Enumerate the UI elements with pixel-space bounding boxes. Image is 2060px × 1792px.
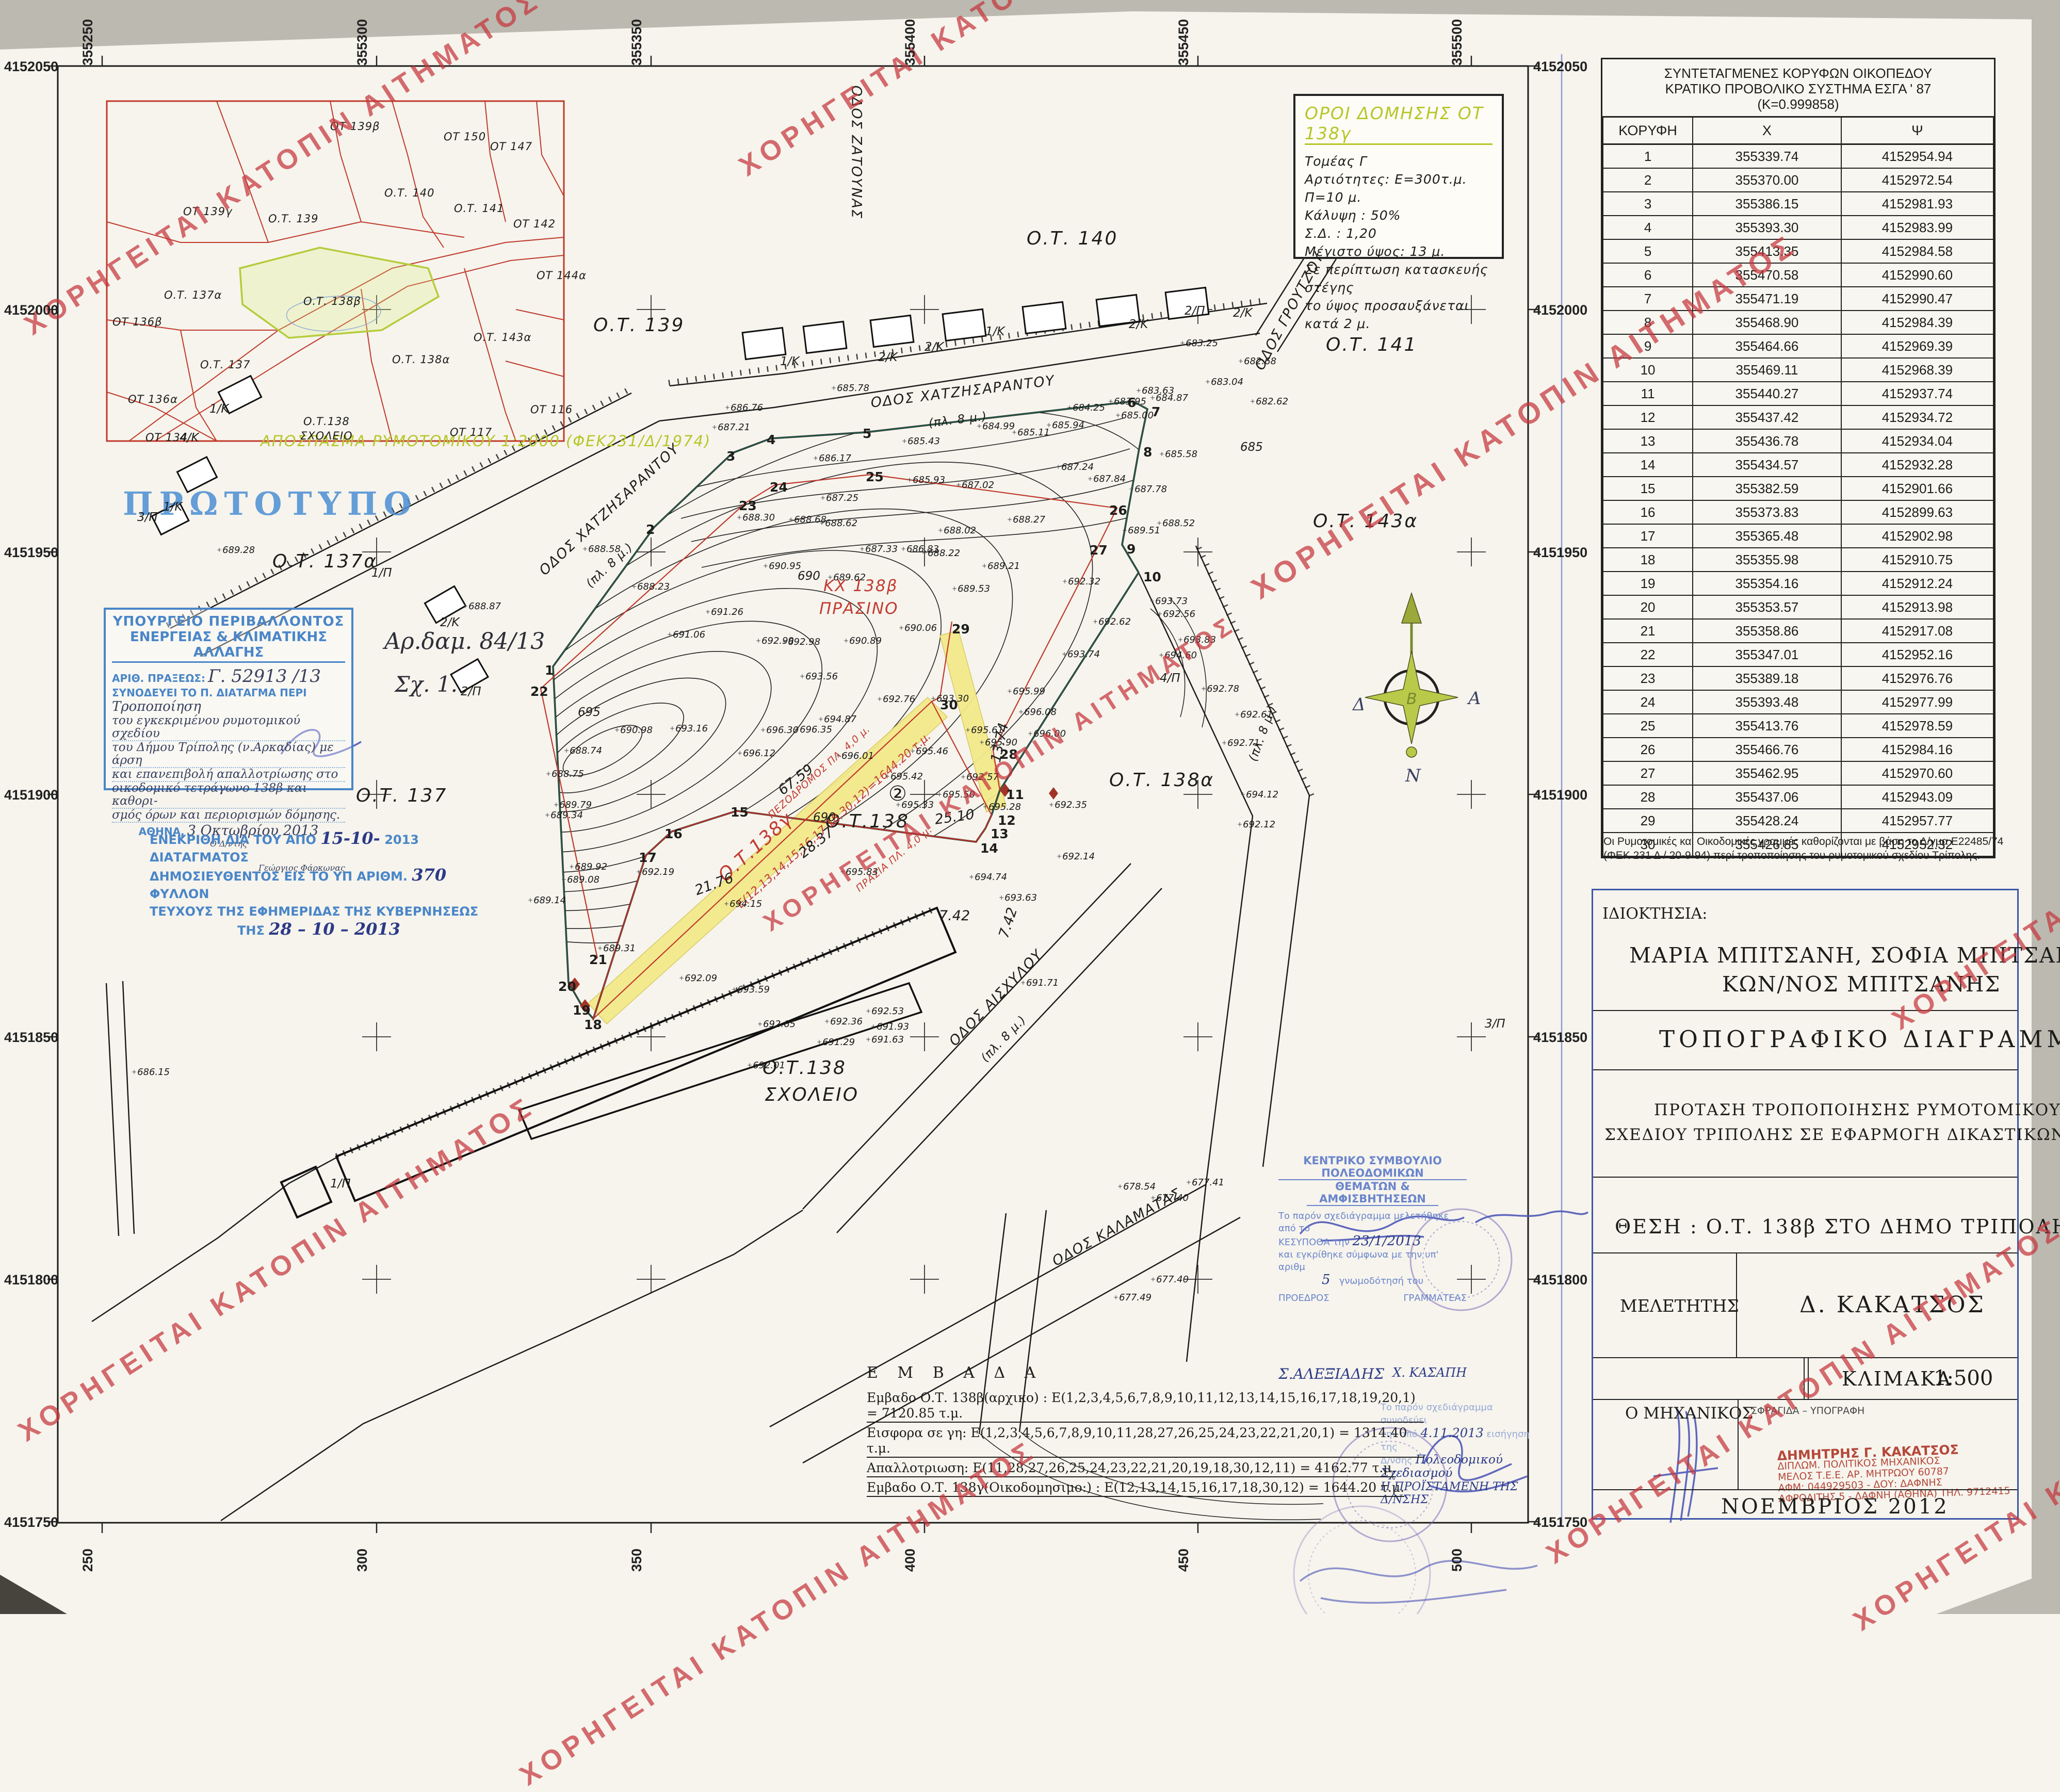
vertex-number: 13 bbox=[991, 826, 1009, 841]
grid-label-bottom: 500 bbox=[1449, 1549, 1465, 1572]
vertex-number: 30 bbox=[940, 697, 958, 712]
inset-block-label: Ο.Τ. 140 bbox=[384, 187, 434, 199]
spot-elevation: 692.12 bbox=[1237, 819, 1275, 830]
spot-elevation: 691.29 bbox=[817, 1037, 855, 1048]
spot-elevation: 690.06 bbox=[899, 623, 937, 633]
spot-elevation: 686.76 bbox=[725, 402, 763, 413]
grid-label-right: 4152050 bbox=[1533, 59, 1587, 75]
inset-block-label: ΟΤ 142 bbox=[513, 218, 556, 230]
spot-elevation: 688.22 bbox=[922, 548, 960, 559]
spot-elevation: 688.58 bbox=[582, 544, 621, 555]
spot-elevation: 683.25 bbox=[1180, 338, 1218, 349]
spot-elevation: 693.63 bbox=[999, 892, 1037, 903]
request-only-watermark: ΧΟΡΗΓΕΙΤΑΙ ΚΑΤΟΠΙΝ ΑΙΤΗΜΑΤΟΣ bbox=[1245, 227, 1804, 606]
inset-block-label: Ο.Τ. 137α bbox=[164, 289, 222, 301]
spot-elevation: 678.54 bbox=[1117, 1181, 1156, 1192]
spot-elevation: 692.61 bbox=[1235, 709, 1273, 720]
spot-elevation: 684.99 bbox=[977, 421, 1015, 432]
request-only-watermark: ΧΟΡΗΓΕΙΤΑΙ ΚΑΤΟΠΙΝ ΑΙΤΗΜΑΤΟΣ bbox=[514, 1433, 1042, 1792]
spot-elevation: 685.00 bbox=[1115, 410, 1154, 421]
spot-elevation: 682.62 bbox=[1250, 396, 1288, 407]
spot-elevation: 689.21 bbox=[982, 561, 1020, 572]
spot-elevation: 689.92 bbox=[569, 861, 607, 872]
spot-elevation: 696.08 bbox=[1018, 707, 1057, 718]
grid-label-left: 4151750 bbox=[4, 1514, 52, 1530]
street-label: ΟΔΟΣ ΑΙΣΧΥΛΟΥ bbox=[946, 947, 1046, 1049]
grid-label-bottom: 350 bbox=[629, 1549, 645, 1572]
map-label: Ο.Τ. 139 bbox=[593, 315, 685, 336]
map-label: Ο.Τ. 137α bbox=[272, 551, 378, 572]
spot-elevation: 694.87 bbox=[818, 714, 856, 725]
spot-elevation: 695.61 bbox=[965, 725, 1003, 736]
spot-elevation: 685.11 bbox=[1012, 427, 1050, 438]
map-label: 2/Π bbox=[461, 685, 481, 698]
vertex-number: 2 bbox=[646, 522, 655, 537]
spot-elevation: 692.35 bbox=[1049, 800, 1087, 810]
map-label: 1/Κ bbox=[985, 325, 1004, 338]
spot-elevation: 689.08 bbox=[561, 874, 599, 885]
map-label: Ο.Τ. 137 bbox=[356, 785, 447, 806]
spot-elevation: 683.04 bbox=[1205, 377, 1243, 387]
spot-elevation: 696.12 bbox=[737, 748, 775, 759]
spot-elevation: 694.15 bbox=[724, 899, 762, 909]
grid-label-right: 4151900 bbox=[1533, 787, 1587, 803]
spot-elevation: 691.06 bbox=[667, 629, 705, 640]
spot-elevation: 694.74 bbox=[969, 872, 1007, 883]
spot-elevation: 691.63 bbox=[866, 1034, 904, 1045]
map-label: 1/Π bbox=[371, 566, 392, 580]
map-label: 2/Π bbox=[1185, 304, 1205, 318]
map-label: 1/Κ bbox=[163, 500, 182, 514]
map-label: 3/Π bbox=[1485, 1017, 1505, 1031]
grid-label-right: 4152000 bbox=[1533, 302, 1587, 318]
vertex-number: 27 bbox=[1090, 543, 1108, 558]
vertex-number: 21 bbox=[589, 952, 607, 967]
spot-elevation: 692.62 bbox=[1093, 616, 1131, 627]
map-label: 1/Κ bbox=[780, 355, 799, 368]
vertex-number: 15 bbox=[731, 805, 749, 820]
scanned-topographic-sheet: { "watermark": {"text": "ΧΟΡΗΓΕΙΤΑΙ ΚΑΤΟ… bbox=[0, 0, 2060, 1614]
spot-elevation: 687.78 bbox=[1129, 484, 1167, 495]
compass-center-letter: Β bbox=[1406, 690, 1417, 708]
spot-elevation: 692.98 bbox=[782, 637, 820, 647]
spot-elevation: 689.28 bbox=[217, 545, 255, 556]
map-label: 1/Κ bbox=[209, 402, 229, 416]
spot-elevation: 693.59 bbox=[732, 984, 770, 995]
vertex-number: 29 bbox=[952, 622, 970, 637]
spot-elevation: 690.95 bbox=[763, 561, 801, 572]
map-label: 7.42 bbox=[939, 908, 970, 924]
vertex-number: 17 bbox=[639, 850, 657, 865]
spot-elevation: 696.35 bbox=[794, 724, 832, 735]
spot-elevation: 692.65 bbox=[757, 1019, 796, 1030]
inset-block-label: Ο.Τ. 137 bbox=[200, 359, 250, 371]
grid-label-top: 355350 bbox=[629, 19, 645, 66]
vertex-number: 16 bbox=[664, 826, 683, 841]
vertex-number: 1 bbox=[545, 663, 554, 678]
spot-elevation: 692.53 bbox=[866, 1006, 904, 1017]
spot-elevation: 688.87 bbox=[463, 601, 501, 612]
inset-block-label: ΟΤ 147 bbox=[490, 140, 532, 153]
map-label: Ο.Τ. 140 bbox=[1027, 228, 1118, 249]
spot-elevation: 688.23 bbox=[631, 581, 670, 592]
vertex-number: 22 bbox=[530, 684, 548, 699]
vertex-number: 25 bbox=[866, 469, 884, 484]
map-label: 2/Κ bbox=[924, 340, 944, 354]
spot-elevation: 696.01 bbox=[836, 751, 874, 761]
map-label: ΣΧΟΛΕΙΟ bbox=[765, 1084, 859, 1105]
spot-elevation: 691.26 bbox=[705, 607, 743, 617]
vertex-number: 6 bbox=[1127, 395, 1136, 410]
vertex-number: 26 bbox=[1109, 503, 1127, 518]
spot-elevation: 692.56 bbox=[1157, 609, 1195, 620]
grid-label-left: 4151800 bbox=[4, 1272, 52, 1288]
spot-elevation: 693.74 bbox=[1062, 649, 1100, 660]
spot-elevation: 690.98 bbox=[614, 725, 653, 736]
spot-elevation: 685.93 bbox=[907, 475, 945, 485]
grid-label-left: 4152000 bbox=[4, 302, 52, 318]
spot-elevation: 692.01 bbox=[747, 1060, 785, 1071]
map-label: 2/Κ bbox=[1233, 306, 1252, 320]
request-only-watermark: ΧΟΡΗΓΕΙΤΑΙ ΚΑΤΟΠΙΝ ΑΙΤΗΜΑΤΟΣ bbox=[1886, 678, 2060, 1036]
grid-label-bottom: 250 bbox=[80, 1549, 96, 1572]
spot-elevation: 689.14 bbox=[528, 895, 566, 906]
spot-elevation: 688.02 bbox=[938, 525, 976, 536]
request-only-watermark: ΧΟΡΗΓΕΙΤΑΙ ΚΑΤΟΠΙΝ ΑΙΤΗΜΑΤΟΣ bbox=[19, 0, 546, 341]
request-only-watermark: ΧΟΡΗΓΕΙΤΑΙ ΚΑΤΟΠΙΝ ΑΙΤΗΜΑΤΟΣ bbox=[12, 1089, 540, 1448]
spot-elevation: 682.68 bbox=[1238, 356, 1276, 367]
grid-label-top: 355300 bbox=[354, 19, 370, 66]
spot-elevation: 691.71 bbox=[1020, 978, 1059, 988]
compass-south-letter: Ν bbox=[1405, 765, 1421, 786]
map-label: 695 bbox=[578, 706, 601, 719]
spot-elevation: 686.17 bbox=[813, 453, 851, 464]
vertex-number: 19 bbox=[573, 1003, 591, 1018]
map-label: 2/Κ bbox=[440, 616, 459, 629]
inset-block-label: ΟΤ 136α bbox=[128, 393, 178, 405]
spot-elevation: 685.43 bbox=[902, 436, 940, 447]
vertex-number: 14 bbox=[980, 841, 998, 856]
spot-elevation: 688.62 bbox=[819, 518, 857, 529]
spot-elevation: 695.46 bbox=[910, 746, 948, 757]
map-label: Ο.Τ. 138α bbox=[1109, 770, 1214, 791]
inset-block-label: Ο.Τ.138 bbox=[303, 415, 350, 428]
spot-elevation: 677.49 bbox=[1113, 1292, 1151, 1303]
vertex-number: 24 bbox=[770, 480, 788, 495]
vertex-number: 5 bbox=[863, 426, 871, 441]
spot-elevation: 694.12 bbox=[1240, 789, 1278, 800]
inset-block-label: Ο.Τ. 138α bbox=[392, 353, 450, 366]
spot-elevation: 695.42 bbox=[885, 771, 923, 782]
spot-elevation: 695.28 bbox=[983, 802, 1021, 812]
street-label: ΟΔΟΣ ΓΡΟΥΤΖΟΥ bbox=[1252, 250, 1327, 373]
map-label: 7.42 bbox=[996, 906, 1020, 940]
inset-block-label: ΟΤ 136β bbox=[112, 316, 163, 328]
grid-label-bottom: 450 bbox=[1176, 1549, 1192, 1572]
spot-elevation: 692.36 bbox=[824, 1016, 863, 1027]
inset-block-label: Ο.Τ. 139 bbox=[268, 213, 318, 225]
spot-elevation: 686.15 bbox=[132, 1067, 170, 1078]
inset-block-label: ΣΧΟΛΕΙΟ bbox=[300, 430, 353, 442]
spot-elevation: 685.78 bbox=[831, 383, 869, 394]
vertex-number: 8 bbox=[1143, 445, 1152, 460]
inset-block-label: Ο.Τ. 143α bbox=[474, 331, 531, 344]
grid-label-left: 4152050 bbox=[4, 59, 52, 75]
spot-elevation: 684.87 bbox=[1150, 393, 1188, 403]
spot-elevation: 688.75 bbox=[546, 769, 584, 779]
spot-elevation: 692.32 bbox=[1062, 576, 1100, 587]
vertex-number: 9 bbox=[1127, 542, 1136, 557]
grid-label-bottom: 300 bbox=[354, 1549, 370, 1572]
spot-elevation: 690.89 bbox=[844, 636, 882, 646]
vertex-number: 3 bbox=[726, 449, 735, 464]
vertex-number: 7 bbox=[1151, 404, 1160, 419]
map-label: Ο.Τ. 141 bbox=[1326, 334, 1417, 355]
request-only-watermark: ΧΟΡΗΓΕΙΤΑΙ ΚΑΤΟΠΙΝ ΑΙΤΗΜΑΤΟΣ bbox=[1540, 1212, 2060, 1570]
inset-block-label: ΟΤ 144α bbox=[537, 269, 587, 282]
grid-label-right: 4151950 bbox=[1533, 545, 1587, 561]
inset-block-label: ΟΤ 134 bbox=[145, 431, 188, 444]
spot-elevation: 685.94 bbox=[1046, 420, 1084, 431]
grid-label-right: 4151800 bbox=[1533, 1272, 1587, 1288]
compass-west-letter: Δ bbox=[1353, 694, 1366, 715]
vertex-number: 11 bbox=[1006, 787, 1024, 802]
grid-label-right: 4151750 bbox=[1533, 1514, 1587, 1530]
spot-elevation: 692.71 bbox=[1222, 738, 1260, 748]
map-label: 1/Π bbox=[330, 1177, 351, 1191]
map-label: 2/Κ bbox=[878, 351, 897, 364]
inset-block-label: ΟΤ 116 bbox=[530, 403, 573, 416]
spot-elevation: 677.40 bbox=[1150, 1193, 1189, 1203]
inset-block-label: ΟΤ 150 bbox=[444, 131, 486, 143]
spot-elevation: 692.76 bbox=[877, 694, 915, 705]
grid-label-left: 4151900 bbox=[4, 787, 52, 803]
street-label: (πλ. 8 μ.) bbox=[979, 1013, 1029, 1065]
grid-label-bottom: 400 bbox=[902, 1549, 918, 1572]
map-annotations: Ο.Τ. 139Ο.Τ. 140Ο.Τ. 141Ο.Τ. 143αΟ.Τ. 13… bbox=[0, 0, 2060, 1614]
spot-elevation: 696.30 bbox=[760, 725, 799, 736]
spot-elevation: 687.24 bbox=[1056, 462, 1094, 473]
spot-elevation: 695.90 bbox=[979, 737, 1017, 748]
spot-elevation: 687.21 bbox=[712, 422, 750, 433]
spot-elevation: 688.52 bbox=[1157, 518, 1195, 529]
grid-label-right: 4151850 bbox=[1533, 1030, 1587, 1046]
vertex-number: 10 bbox=[1143, 569, 1161, 584]
vertex-number: 20 bbox=[558, 979, 576, 994]
spot-elevation: 677.41 bbox=[1186, 1177, 1224, 1188]
map-label: 3/Π bbox=[137, 511, 158, 524]
spot-elevation: 689.62 bbox=[828, 572, 866, 583]
spot-elevation: 677.40 bbox=[1150, 1274, 1189, 1285]
spot-elevation: 688.74 bbox=[564, 745, 602, 756]
map-label: 21.76 bbox=[693, 870, 736, 899]
grid-label-top: 355500 bbox=[1449, 19, 1465, 66]
inset-block-label: Ο.Τ. 141 bbox=[454, 202, 504, 215]
grid-label-left: 4151850 bbox=[4, 1030, 52, 1046]
spot-elevation: 691.93 bbox=[871, 1021, 909, 1032]
grid-label-top: 355450 bbox=[1176, 19, 1192, 66]
red-plan-label: ΠΡΑΣΙΝΟ bbox=[819, 599, 899, 618]
spot-elevation: 692.78 bbox=[1201, 683, 1239, 694]
vertex-number: 12 bbox=[998, 813, 1016, 828]
spot-elevation: 687.25 bbox=[820, 493, 858, 503]
spot-elevation: 687.33 bbox=[859, 544, 898, 555]
spot-elevation: 695.99 bbox=[1007, 686, 1045, 697]
spot-elevation: 689.79 bbox=[554, 800, 592, 810]
inset-block-label: ΟΤ 117 bbox=[450, 426, 492, 438]
grid-label-top: 355400 bbox=[902, 19, 918, 66]
vertex-number: 18 bbox=[584, 1017, 602, 1032]
spot-elevation: 687.02 bbox=[956, 480, 994, 491]
compass-east-letter: Α bbox=[1468, 688, 1481, 709]
spot-elevation: 685.58 bbox=[1159, 449, 1197, 460]
street-label: ΟΔΟΣ ΧΑΤΖΗΣΑΡΑΝΤΟΥ bbox=[870, 372, 1056, 411]
spot-elevation: 688.27 bbox=[1007, 514, 1045, 525]
spot-elevation: 693.16 bbox=[670, 723, 708, 734]
spot-elevation: 689.51 bbox=[1122, 525, 1160, 536]
spot-elevation: 687.84 bbox=[1088, 474, 1126, 484]
inset-block-label: Ο.Τ. 138β bbox=[303, 295, 361, 307]
map-label: 2/Κ bbox=[1129, 318, 1148, 331]
spot-elevation: 692.09 bbox=[679, 973, 717, 984]
grid-label-top: 355250 bbox=[80, 19, 96, 66]
spot-elevation: 692.19 bbox=[636, 867, 674, 877]
map-label: 685 bbox=[1240, 441, 1263, 454]
grid-label-left: 4151950 bbox=[4, 545, 52, 561]
spot-elevation: 693.73 bbox=[1149, 596, 1188, 607]
spot-elevation: 684.25 bbox=[1067, 402, 1105, 413]
spot-elevation: 692.14 bbox=[1057, 851, 1095, 862]
spot-elevation: 693.56 bbox=[800, 671, 838, 682]
spot-elevation: 689.34 bbox=[545, 810, 583, 821]
spot-elevation: 688.30 bbox=[737, 512, 775, 523]
vertex-number: 23 bbox=[739, 498, 757, 513]
vertex-number: 4 bbox=[767, 432, 775, 447]
map-label: 690 bbox=[813, 811, 836, 824]
spot-elevation: 689.53 bbox=[952, 583, 990, 594]
